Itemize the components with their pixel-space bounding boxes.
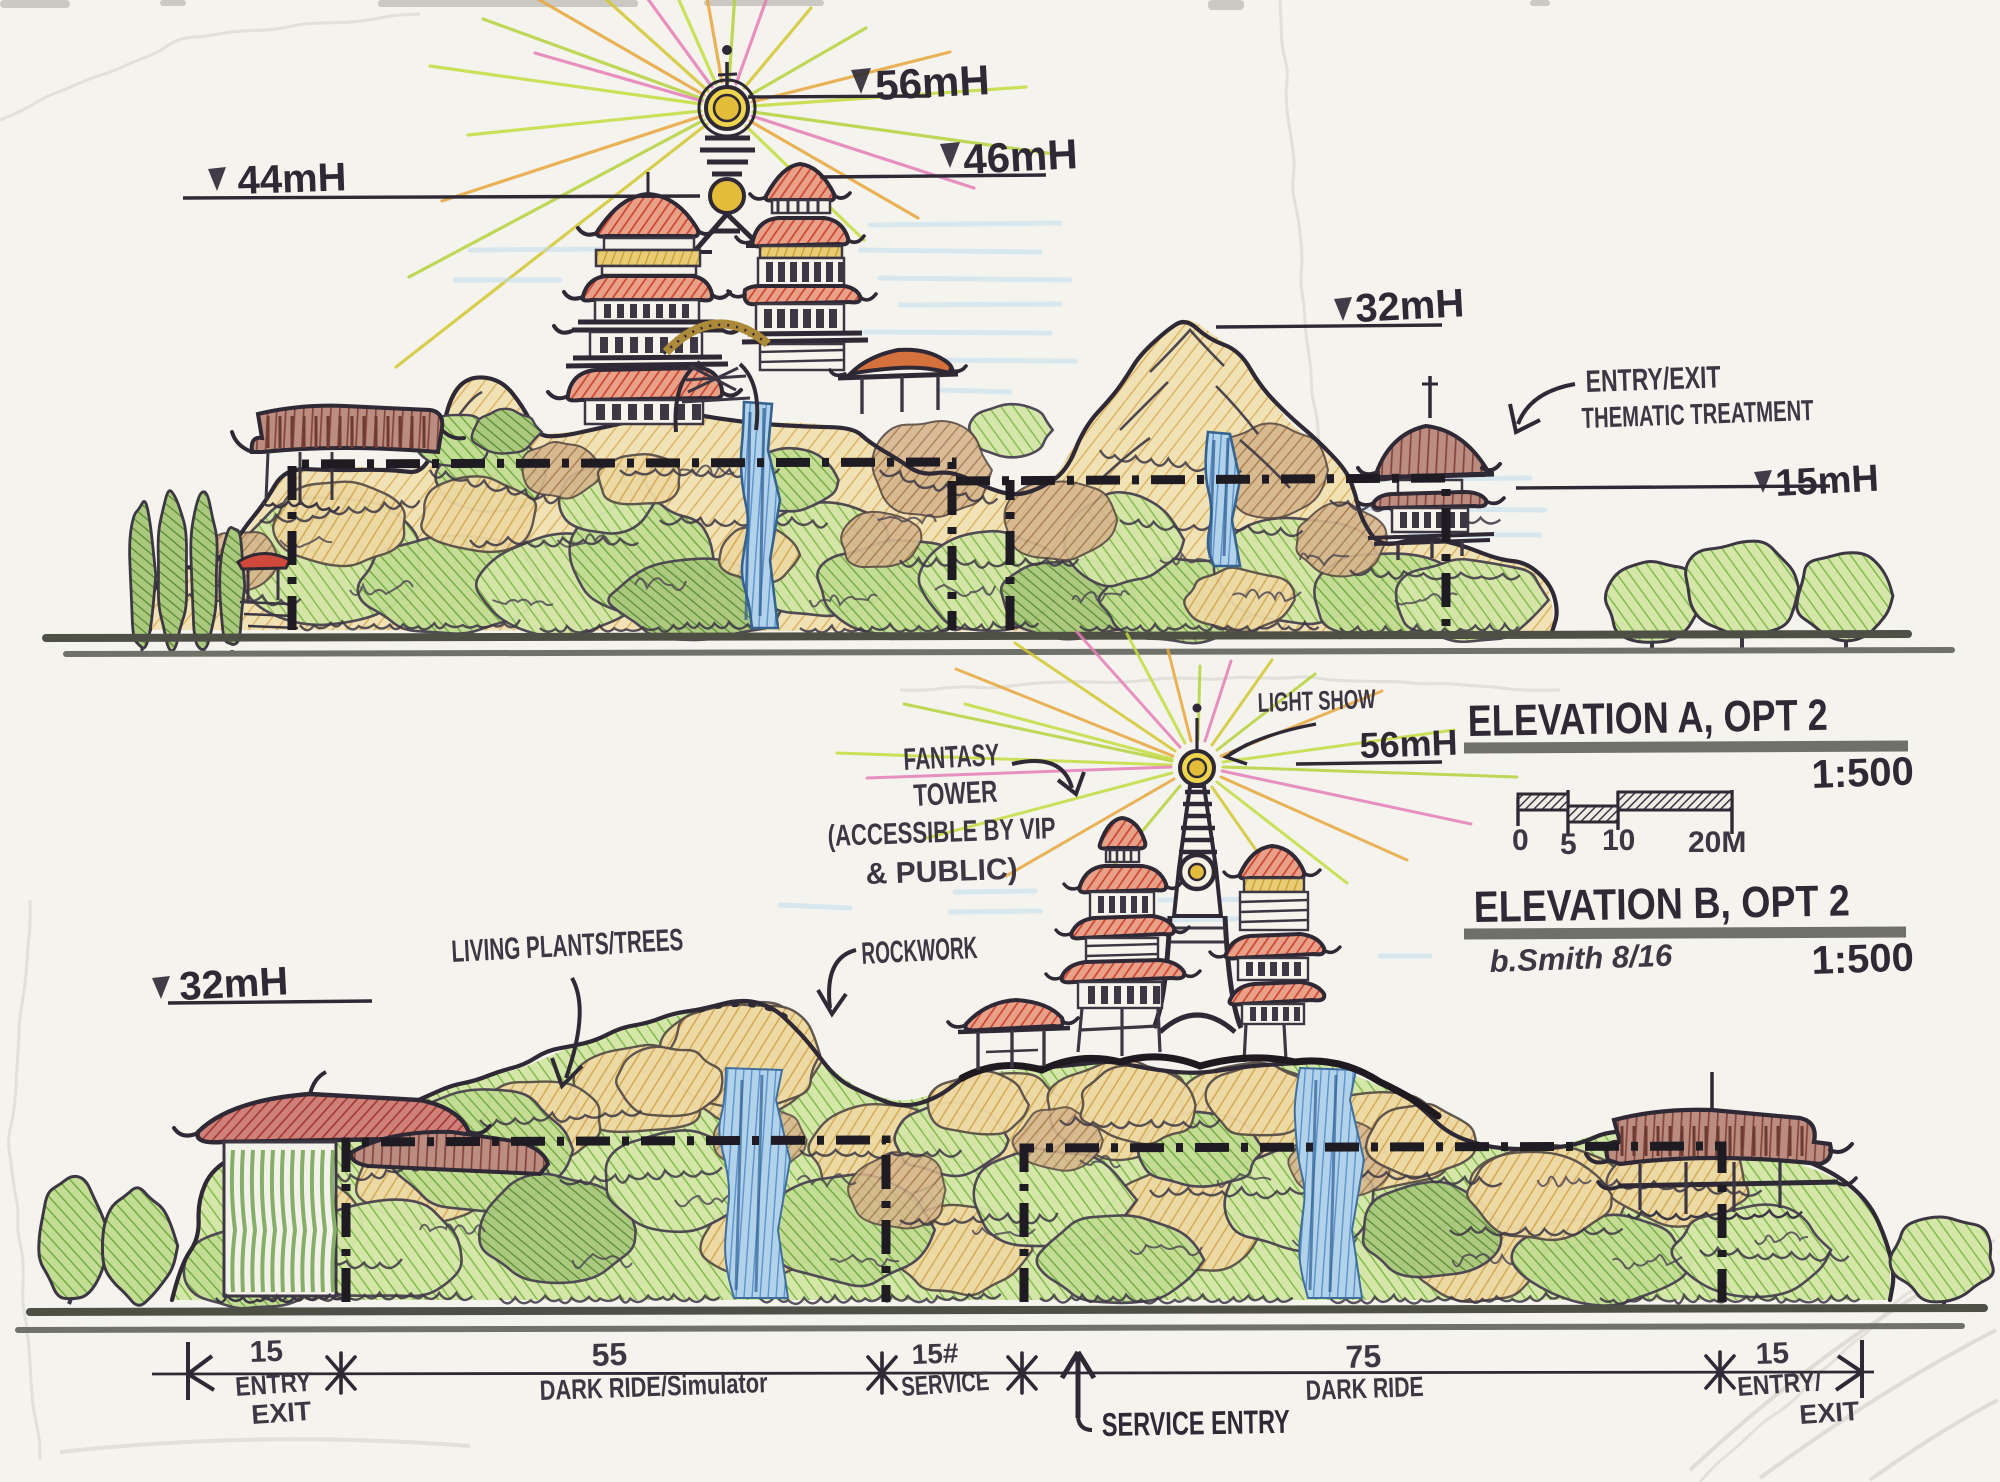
svg-text:75: 75	[1345, 1338, 1382, 1375]
svg-text:56mH: 56mH	[1359, 722, 1458, 766]
svg-text:b.Smith 8/16: b.Smith 8/16	[1489, 938, 1673, 979]
svg-text:15: 15	[249, 1335, 284, 1369]
svg-text:15mH: 15mH	[1774, 458, 1880, 505]
svg-text:55: 55	[591, 1336, 628, 1373]
svg-text:ENTRY/: ENTRY/	[1736, 1366, 1822, 1402]
svg-text:ELEVATION A, OPT 2: ELEVATION A, OPT 2	[1467, 691, 1828, 746]
svg-text:5: 5	[1560, 828, 1577, 861]
svg-text:56mH: 56mH	[874, 56, 991, 109]
svg-text:1:500: 1:500	[1811, 749, 1915, 797]
svg-text:ROCKWORK: ROCKWORK	[861, 930, 979, 971]
svg-text:DARK RIDE: DARK RIDE	[1305, 1371, 1424, 1406]
svg-text:SERVICE ENTRY: SERVICE ENTRY	[1101, 1403, 1290, 1443]
svg-text:FANTASY: FANTASY	[903, 737, 1001, 777]
svg-text:44mH: 44mH	[237, 155, 347, 203]
svg-text:15: 15	[1755, 1337, 1790, 1371]
svg-text:32mH: 32mH	[1354, 281, 1465, 331]
svg-text:0: 0	[1512, 824, 1529, 857]
svg-text:46mH: 46mH	[962, 130, 1079, 183]
svg-text:EXIT: EXIT	[1798, 1396, 1860, 1430]
svg-text:15#: 15#	[911, 1337, 959, 1370]
svg-text:EXIT: EXIT	[250, 1396, 312, 1430]
svg-text:1:500: 1:500	[1811, 935, 1915, 983]
svg-text:& PUBLIC): & PUBLIC)	[865, 853, 1018, 891]
svg-text:ELEVATION B, OPT 2: ELEVATION B, OPT 2	[1473, 876, 1850, 932]
svg-text:TOWER: TOWER	[913, 774, 999, 813]
svg-text:LIGHT SHOW: LIGHT SHOW	[1257, 684, 1376, 718]
svg-text:20M: 20M	[1688, 826, 1746, 859]
svg-text:32mH: 32mH	[178, 959, 289, 1009]
svg-text:ENTRY/EXIT: ENTRY/EXIT	[1585, 359, 1721, 399]
svg-text:10: 10	[1602, 824, 1635, 857]
svg-text:SERVICE: SERVICE	[900, 1366, 990, 1402]
